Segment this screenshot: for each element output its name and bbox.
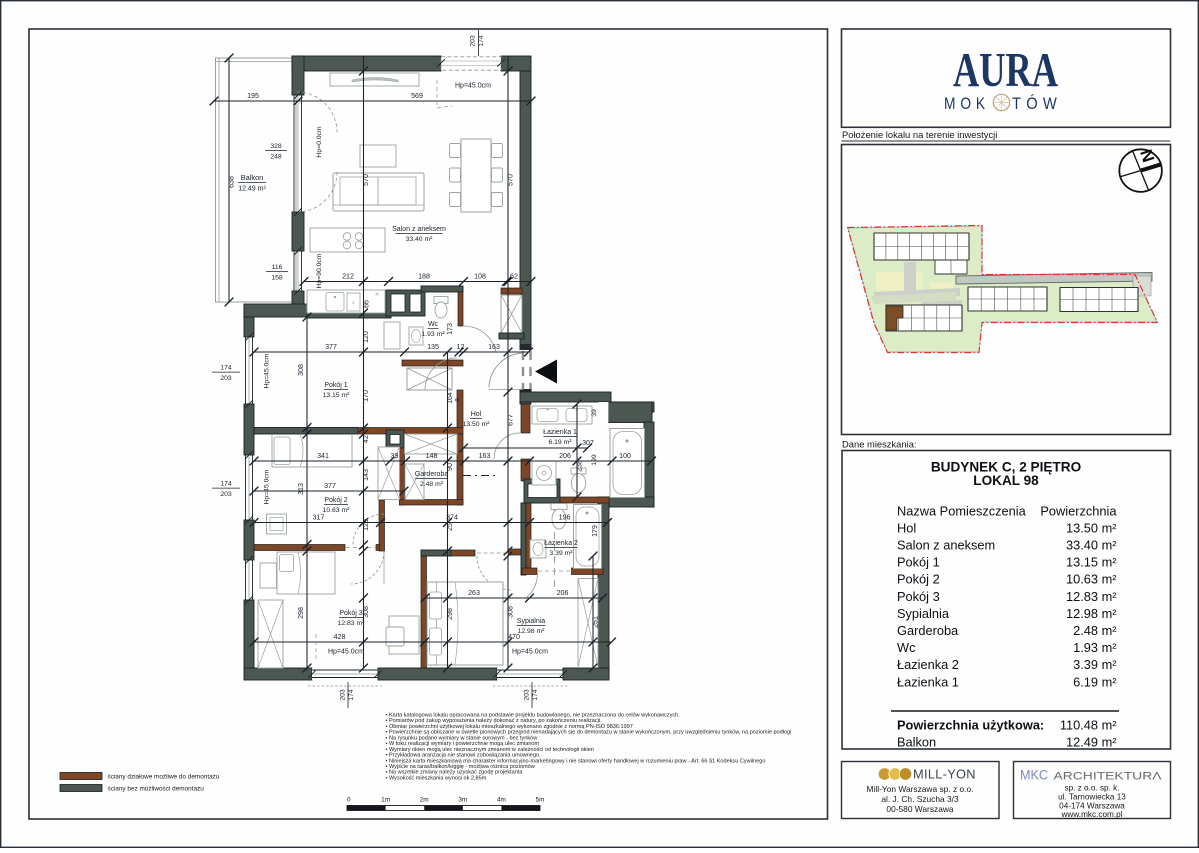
svg-text:1m: 1m	[381, 797, 390, 804]
svg-text:Hp=45.0cm: Hp=45.0cm	[264, 469, 271, 504]
svg-text:MKC: MKC	[1020, 768, 1048, 783]
svg-text:12.83 m²: 12.83 m²	[338, 620, 366, 627]
svg-text:569: 569	[411, 92, 423, 100]
svg-text:42: 42	[362, 435, 370, 443]
svg-text:Pokój 3: Pokój 3	[339, 610, 362, 617]
svg-text:6.19 m²: 6.19 m²	[1073, 674, 1117, 689]
svg-text:10.63 m²: 10.63 m²	[1066, 572, 1117, 587]
svg-text:12: 12	[457, 343, 465, 351]
svg-text:163: 163	[488, 343, 500, 351]
svg-text:ARCHITEKTURΛ: ARCHITEKTURΛ	[1054, 771, 1163, 783]
svg-text:203: 203	[524, 689, 531, 701]
svg-text:90: 90	[446, 463, 454, 471]
svg-text:Łazienka 2: Łazienka 2	[544, 540, 578, 547]
svg-text:3m: 3m	[458, 797, 467, 804]
svg-text:203: 203	[340, 689, 347, 701]
svg-text:Hol: Hol	[471, 411, 482, 418]
svg-text:307: 307	[582, 439, 594, 447]
svg-text:sp. z o.o. sp. k.: sp. z o.o. sp. k.	[1064, 784, 1119, 793]
svg-text:ul. Tarnowiecka 13: ul. Tarnowiecka 13	[1058, 793, 1126, 802]
svg-text:• Wysokość mieszkania wynosi o: • Wysokość mieszkania wynosi ok 2,85m	[386, 775, 487, 781]
svg-text:Salon z aneksem: Salon z aneksem	[897, 538, 995, 553]
svg-text:248: 248	[270, 154, 282, 161]
svg-text:Hp=90.0cm: Hp=90.0cm	[316, 253, 323, 288]
svg-text:3.39 m²: 3.39 m²	[1073, 657, 1117, 672]
svg-text:12.49 m²: 12.49 m²	[238, 186, 266, 193]
svg-text:al. J. Ch. Szucha 3/3: al. J. Ch. Szucha 3/3	[881, 794, 959, 804]
svg-text:LOKAL 98: LOKAL 98	[973, 473, 1039, 488]
svg-text:Garderoba: Garderoba	[897, 623, 959, 638]
svg-text:Balkon: Balkon	[897, 735, 936, 750]
svg-text:677: 677	[506, 414, 514, 426]
svg-text:33.40 m²: 33.40 m²	[406, 236, 434, 243]
svg-text:298: 298	[297, 607, 305, 619]
svg-text:00-580 Warszawa: 00-580 Warszawa	[886, 804, 954, 814]
svg-text:1.93 m²: 1.93 m²	[1073, 640, 1117, 655]
svg-text:Nazwa Pomieszczenia: Nazwa Pomieszczenia	[897, 504, 1027, 519]
svg-text:13.50 m²: 13.50 m²	[463, 421, 491, 428]
svg-text:308: 308	[297, 364, 305, 376]
svg-text:2m: 2m	[420, 797, 429, 804]
svg-text:163: 163	[479, 452, 491, 460]
svg-text:251: 251	[591, 616, 599, 628]
svg-text:2.48 m²: 2.48 m²	[1073, 623, 1117, 638]
svg-text:570: 570	[362, 174, 370, 186]
svg-text:39: 39	[591, 409, 598, 417]
svg-text:148: 148	[426, 452, 438, 460]
svg-text:Pokój 1: Pokój 1	[324, 382, 347, 389]
svg-text:Położenie lokalu na terenie in: Położenie lokalu na terenie inwestycji	[842, 129, 997, 140]
svg-text:179: 179	[592, 525, 599, 537]
svg-text:116: 116	[272, 264, 283, 271]
svg-text:Pokój 1: Pokój 1	[897, 555, 940, 570]
svg-text:33.40 m²: 33.40 m²	[1066, 538, 1117, 553]
svg-text:638: 638	[227, 176, 235, 188]
svg-text:313: 313	[297, 483, 305, 495]
svg-text:308: 308	[506, 606, 514, 618]
svg-text:5m: 5m	[536, 797, 545, 804]
svg-text:298: 298	[446, 608, 454, 620]
svg-text:Hp=45.0cm: Hp=45.0cm	[455, 83, 491, 90]
svg-text:Sypialnia: Sypialnia	[897, 606, 950, 621]
svg-text:Hp=45.0cm: Hp=45.0cm	[264, 353, 271, 388]
svg-text:Pokój 2: Pokój 2	[324, 497, 347, 504]
svg-text:173: 173	[447, 323, 454, 335]
svg-text:ściany bez możliwości demontaż: ściany bez możliwości demontażu	[108, 786, 205, 793]
svg-text:129: 129	[362, 519, 370, 531]
svg-text:13.15 m²: 13.15 m²	[1066, 555, 1117, 570]
svg-text:25: 25	[446, 523, 454, 531]
svg-text:13.15 m²: 13.15 m²	[323, 392, 351, 399]
svg-text:12.49 m²: 12.49 m²	[1066, 735, 1117, 750]
svg-text:2.48 m²: 2.48 m²	[420, 481, 444, 488]
svg-text:308: 308	[362, 606, 370, 618]
svg-text:199: 199	[591, 454, 598, 466]
svg-text:174: 174	[220, 365, 232, 372]
svg-text:Mill-Yon Warszawa sp. z o.o.: Mill-Yon Warszawa sp. z o.o.	[867, 784, 974, 794]
svg-text:6.19 m²: 6.19 m²	[548, 439, 572, 446]
svg-text:Powierzchnia użytkowa:: Powierzchnia użytkowa:	[897, 718, 1044, 733]
svg-text:Łazienka 1: Łazienka 1	[543, 429, 577, 436]
svg-text:ściany działowe możliwe do dem: ściany działowe możliwe do demontażu	[108, 774, 220, 781]
svg-text:12.83 m²: 12.83 m²	[1066, 589, 1117, 604]
svg-text:AURA: AURA	[953, 42, 1058, 97]
svg-text:Wc: Wc	[428, 321, 439, 328]
svg-text:570: 570	[506, 174, 514, 186]
svg-text:143: 143	[362, 469, 370, 481]
svg-text:1.93 m²: 1.93 m²	[421, 331, 445, 338]
svg-text:341: 341	[317, 452, 329, 460]
svg-text:174: 174	[220, 481, 232, 488]
svg-text:174: 174	[478, 35, 485, 47]
svg-text:Pokój 3: Pokój 3	[897, 589, 940, 604]
svg-text:238: 238	[575, 460, 583, 472]
svg-text:170: 170	[362, 390, 370, 402]
svg-text:100: 100	[619, 452, 631, 460]
svg-text:Hp=45.0cm: Hp=45.0cm	[328, 649, 364, 656]
svg-text:108: 108	[474, 272, 486, 280]
svg-text:12.98 m²: 12.98 m²	[518, 628, 546, 635]
svg-text:317: 317	[313, 513, 325, 521]
svg-text:188: 188	[418, 272, 430, 280]
svg-text:174: 174	[348, 689, 355, 701]
svg-text:Balkon: Balkon	[241, 173, 264, 182]
svg-text:0: 0	[347, 797, 351, 804]
svg-text:Hp=0.0cm: Hp=0.0cm	[316, 126, 323, 158]
svg-text:MILL-YON: MILL-YON	[913, 767, 976, 782]
svg-text:196: 196	[559, 513, 571, 521]
svg-text:158: 158	[271, 275, 283, 282]
svg-text:12.98 m²: 12.98 m²	[1066, 606, 1117, 621]
svg-text:www.mkc.com.pl: www.mkc.com.pl	[1061, 810, 1123, 819]
svg-text:4m: 4m	[497, 797, 506, 804]
svg-text:Łazienka 2: Łazienka 2	[897, 657, 959, 672]
svg-text:39: 39	[391, 452, 399, 460]
svg-text:Powierzchnia: Powierzchnia	[1040, 504, 1117, 519]
svg-text:212: 212	[342, 272, 354, 280]
svg-text:164: 164	[446, 392, 454, 404]
svg-text:13.50 m²: 13.50 m²	[1066, 520, 1117, 535]
svg-text:206: 206	[557, 589, 569, 597]
svg-text:Garderoba: Garderoba	[415, 471, 449, 478]
svg-text:Salon z aneksem: Salon z aneksem	[392, 226, 446, 233]
svg-text:203: 203	[470, 35, 477, 47]
svg-text:428: 428	[334, 633, 346, 641]
svg-text:203: 203	[220, 491, 232, 498]
svg-text:377: 377	[324, 482, 336, 490]
svg-text:263: 263	[468, 589, 480, 597]
svg-text:Hol: Hol	[897, 520, 916, 535]
svg-text:10.63 m²: 10.63 m²	[323, 507, 351, 514]
svg-text:110.48 m²: 110.48 m²	[1060, 718, 1117, 733]
svg-text:3.39 m²: 3.39 m²	[549, 550, 573, 557]
svg-text:135: 135	[427, 343, 439, 351]
svg-text:✳: ✳	[375, 291, 380, 298]
svg-text:Sypialnia: Sypialnia	[517, 618, 546, 625]
svg-text:Hp=45.0cm: Hp=45.0cm	[512, 649, 548, 656]
svg-text:66: 66	[364, 300, 371, 308]
svg-text:Wc: Wc	[897, 640, 916, 655]
svg-text:174: 174	[532, 689, 539, 701]
svg-text:04-174 Warszawa: 04-174 Warszawa	[1059, 802, 1125, 811]
svg-text:Pokój 2: Pokój 2	[897, 572, 940, 587]
svg-text:328: 328	[270, 143, 282, 150]
svg-text:203: 203	[220, 375, 232, 382]
svg-text:120: 120	[362, 331, 370, 343]
svg-text:Dane mieszkania:: Dane mieszkania:	[842, 438, 917, 449]
svg-text:206: 206	[559, 452, 571, 460]
svg-text:MOK: MOK	[944, 94, 990, 113]
svg-text:Łazienka 1: Łazienka 1	[897, 674, 959, 689]
svg-text:195: 195	[247, 92, 259, 100]
svg-text:TÓW: TÓW	[1012, 94, 1062, 113]
svg-text:377: 377	[325, 343, 337, 351]
